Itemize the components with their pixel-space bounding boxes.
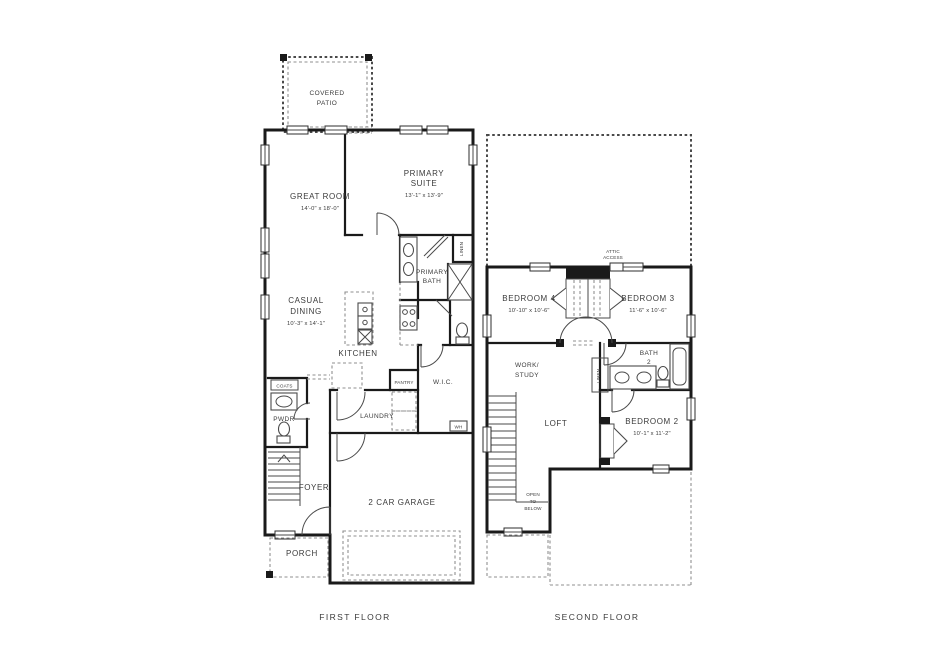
open-to-below-label: OPEN	[526, 492, 540, 497]
floor-plan-page: COVERED PATIO GREAT ROOM 14'-0" x 18'-0"…	[0, 0, 929, 663]
primary-suite-label: PRIMARY	[404, 169, 445, 178]
bedroom2-dims: 10'-1" x 11'-2"	[633, 431, 670, 437]
garage-label: 2 CAR GARAGE	[368, 498, 435, 507]
primary-suite-label2: SUITE	[411, 179, 438, 188]
second-floor-stairs	[488, 392, 548, 502]
second-floor-windows	[483, 263, 695, 536]
water-heater-label: WH	[455, 425, 463, 430]
bath2-label2: 2	[647, 359, 651, 366]
second-floor-open-footprint	[487, 135, 691, 267]
floor-plan-drawing: COVERED PATIO GREAT ROOM 14'-0" x 18'-0"…	[0, 0, 929, 663]
primary-suite-dims: 13'-1" x 13'-9"	[405, 193, 443, 199]
casual-dining-dims: 10'-3" x 14'-1"	[287, 321, 325, 327]
covered-patio-label: COVERED	[310, 90, 345, 97]
covered-patio-label2: PATIO	[317, 100, 338, 107]
hall-door-arc	[560, 317, 612, 343]
casual-dining-label: CASUAL	[288, 296, 324, 305]
shower-icon	[448, 264, 472, 300]
toilet-icon	[456, 323, 469, 344]
bedroom2-closet	[600, 417, 627, 465]
bath2-toilet-icon	[657, 367, 669, 388]
bedroom2-label: BEDROOM 2	[625, 417, 678, 426]
second-floor-outer-walls	[487, 267, 691, 532]
great-room-dims: 14'-0" x 18'-0"	[301, 206, 339, 212]
loft-label: LOFT	[545, 419, 568, 428]
attic-access-label2: ACCESS	[603, 255, 623, 260]
bathtub-icon	[670, 344, 689, 389]
garage-door-outline	[343, 531, 460, 580]
kitchen-label: KITCHEN	[338, 349, 377, 358]
bedroom3-dims: 11'-6" x 10'-6"	[629, 308, 666, 314]
wic-label: W.I.C.	[433, 379, 453, 386]
range-icon	[400, 282, 418, 345]
attic-access-label: ATTIC	[606, 249, 620, 254]
powder-toilet-icon	[277, 422, 290, 443]
primary-bath-sinks	[400, 237, 417, 282]
linen-label: LINEN	[459, 242, 464, 256]
second-floor-caption: SECOND FLOOR	[555, 612, 640, 622]
bath2-label: BATH	[640, 350, 658, 357]
second-floor-plan: BEDROOM 4 10'-10" x 10'-6" BEDROOM 3 11'…	[483, 135, 695, 622]
first-floor-caption: FIRST FLOOR	[319, 612, 390, 622]
first-floor-plan: COVERED PATIO GREAT ROOM 14'-0" x 18'-0"…	[261, 54, 477, 622]
bedroom4-dims: 10'-10" x 10'-6"	[508, 308, 549, 314]
first-floor-stairs	[268, 447, 300, 506]
kitchen-counter	[332, 363, 362, 388]
pantry-label: PANTRY	[394, 380, 413, 385]
powder-sink-icon	[271, 393, 297, 410]
bedroom4-label: BEDROOM 4	[502, 294, 555, 303]
linen2-label: LINEN	[596, 369, 601, 383]
primary-bath-label2: BATH	[423, 278, 441, 285]
laundry-label: LAUNDRY	[360, 413, 394, 420]
kitchen-island	[345, 292, 373, 345]
open-to-below-label3: BELOW	[524, 506, 542, 511]
washer-dryer-icon	[392, 392, 416, 430]
bedroom-closets	[552, 279, 624, 318]
coats-label: COATS	[276, 384, 292, 389]
open-to-below-label2: TO	[530, 499, 537, 504]
bedroom2-door-arc	[612, 390, 634, 412]
bedroom3-label: BEDROOM 3	[621, 294, 674, 303]
foyer-label: FOYER	[299, 483, 330, 492]
work-study-label: WORK/	[515, 362, 539, 369]
porch-label: PORCH	[286, 549, 318, 558]
casual-dining-label2: DINING	[290, 307, 322, 316]
great-room-label: GREAT ROOM	[290, 192, 350, 201]
powder-label: PWDR	[273, 416, 294, 423]
primary-bath-label: PRIMARY	[416, 269, 449, 276]
porch-outline	[266, 538, 328, 578]
work-study-label2: STUDY	[515, 372, 539, 379]
